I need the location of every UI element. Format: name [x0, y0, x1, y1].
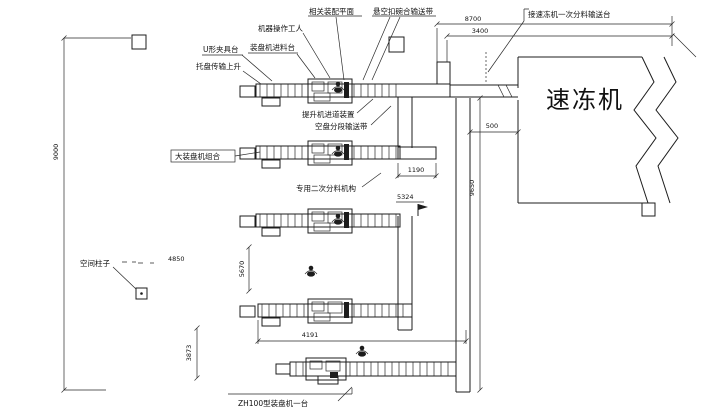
dim-row2-out: 1190 [408, 166, 425, 174]
label-empty-tray-belt: 空盘分段输送带 [315, 121, 368, 131]
label-freezer-infeed: 接速冻机一次分料输送台 [528, 9, 611, 19]
machine-row-4 [240, 299, 412, 326]
tray-return-link [398, 97, 412, 148]
freezer-outline [518, 57, 678, 203]
dim-top-inner: 3400 [472, 27, 489, 35]
dimension-lines [62, 16, 697, 393]
building-columns [132, 35, 655, 299]
label-zh100: ZH100型装盘机一台 [238, 398, 308, 408]
column-icon [642, 203, 655, 216]
dim-elevation: 5324 [397, 193, 414, 201]
dim-row-gap: 5670 [238, 261, 246, 278]
dim-freezer-gap: 500 [486, 122, 498, 130]
dim-bottom-height: 3873 [185, 345, 193, 362]
freezer-infeed-belt [450, 85, 518, 97]
dim-top-overall: 8700 [465, 15, 482, 23]
label-hanging-belt: 悬空扣碗合输送带 [373, 6, 433, 16]
label-lift-entry: 提升机进道装置 [302, 109, 355, 119]
label-infeed-table: 装盘机进料台 [250, 42, 295, 52]
label-main-unit: 大装盘机组合 [175, 151, 220, 161]
column-icon [132, 35, 146, 49]
drawing-canvas: 速冻机 [0, 0, 720, 420]
machine-row-3 [240, 209, 400, 236]
cad-layout-drawing: 速冻机 [0, 0, 720, 420]
dim-left-height: 9000 [52, 144, 60, 161]
label-column: 空间柱子 [80, 258, 110, 268]
flag-icon [418, 204, 428, 210]
leader-lines [113, 9, 529, 401]
main-vertical-conveyor [456, 98, 470, 392]
column-center-dot [140, 292, 143, 295]
row2-outfeed [398, 147, 436, 159]
label-assembly-plane: 相关装配平面 [309, 6, 354, 16]
dim-row4-width: 4191 [302, 331, 319, 339]
dim-main-conveyor: 9650 [468, 180, 476, 197]
label-u-fixture: U形夹具台 [203, 44, 239, 54]
row3-row4-link [398, 216, 412, 330]
riser-unit [437, 62, 450, 84]
bottom-packer-unit [276, 358, 456, 384]
machine-row-1 [240, 79, 450, 106]
column-icon [389, 37, 404, 52]
dim-col-offset: 4850 [168, 255, 185, 263]
freezer-label: 速冻机 [546, 86, 624, 114]
label-tray-lift: 托盘传输上升 [196, 61, 241, 71]
operator-icon [305, 266, 317, 277]
label-secondary-feed: 专用二次分料机构 [296, 183, 356, 193]
machine-row-2 [240, 141, 400, 168]
operator-icon [356, 346, 368, 357]
label-worker: 机器操作工人 [258, 23, 303, 33]
